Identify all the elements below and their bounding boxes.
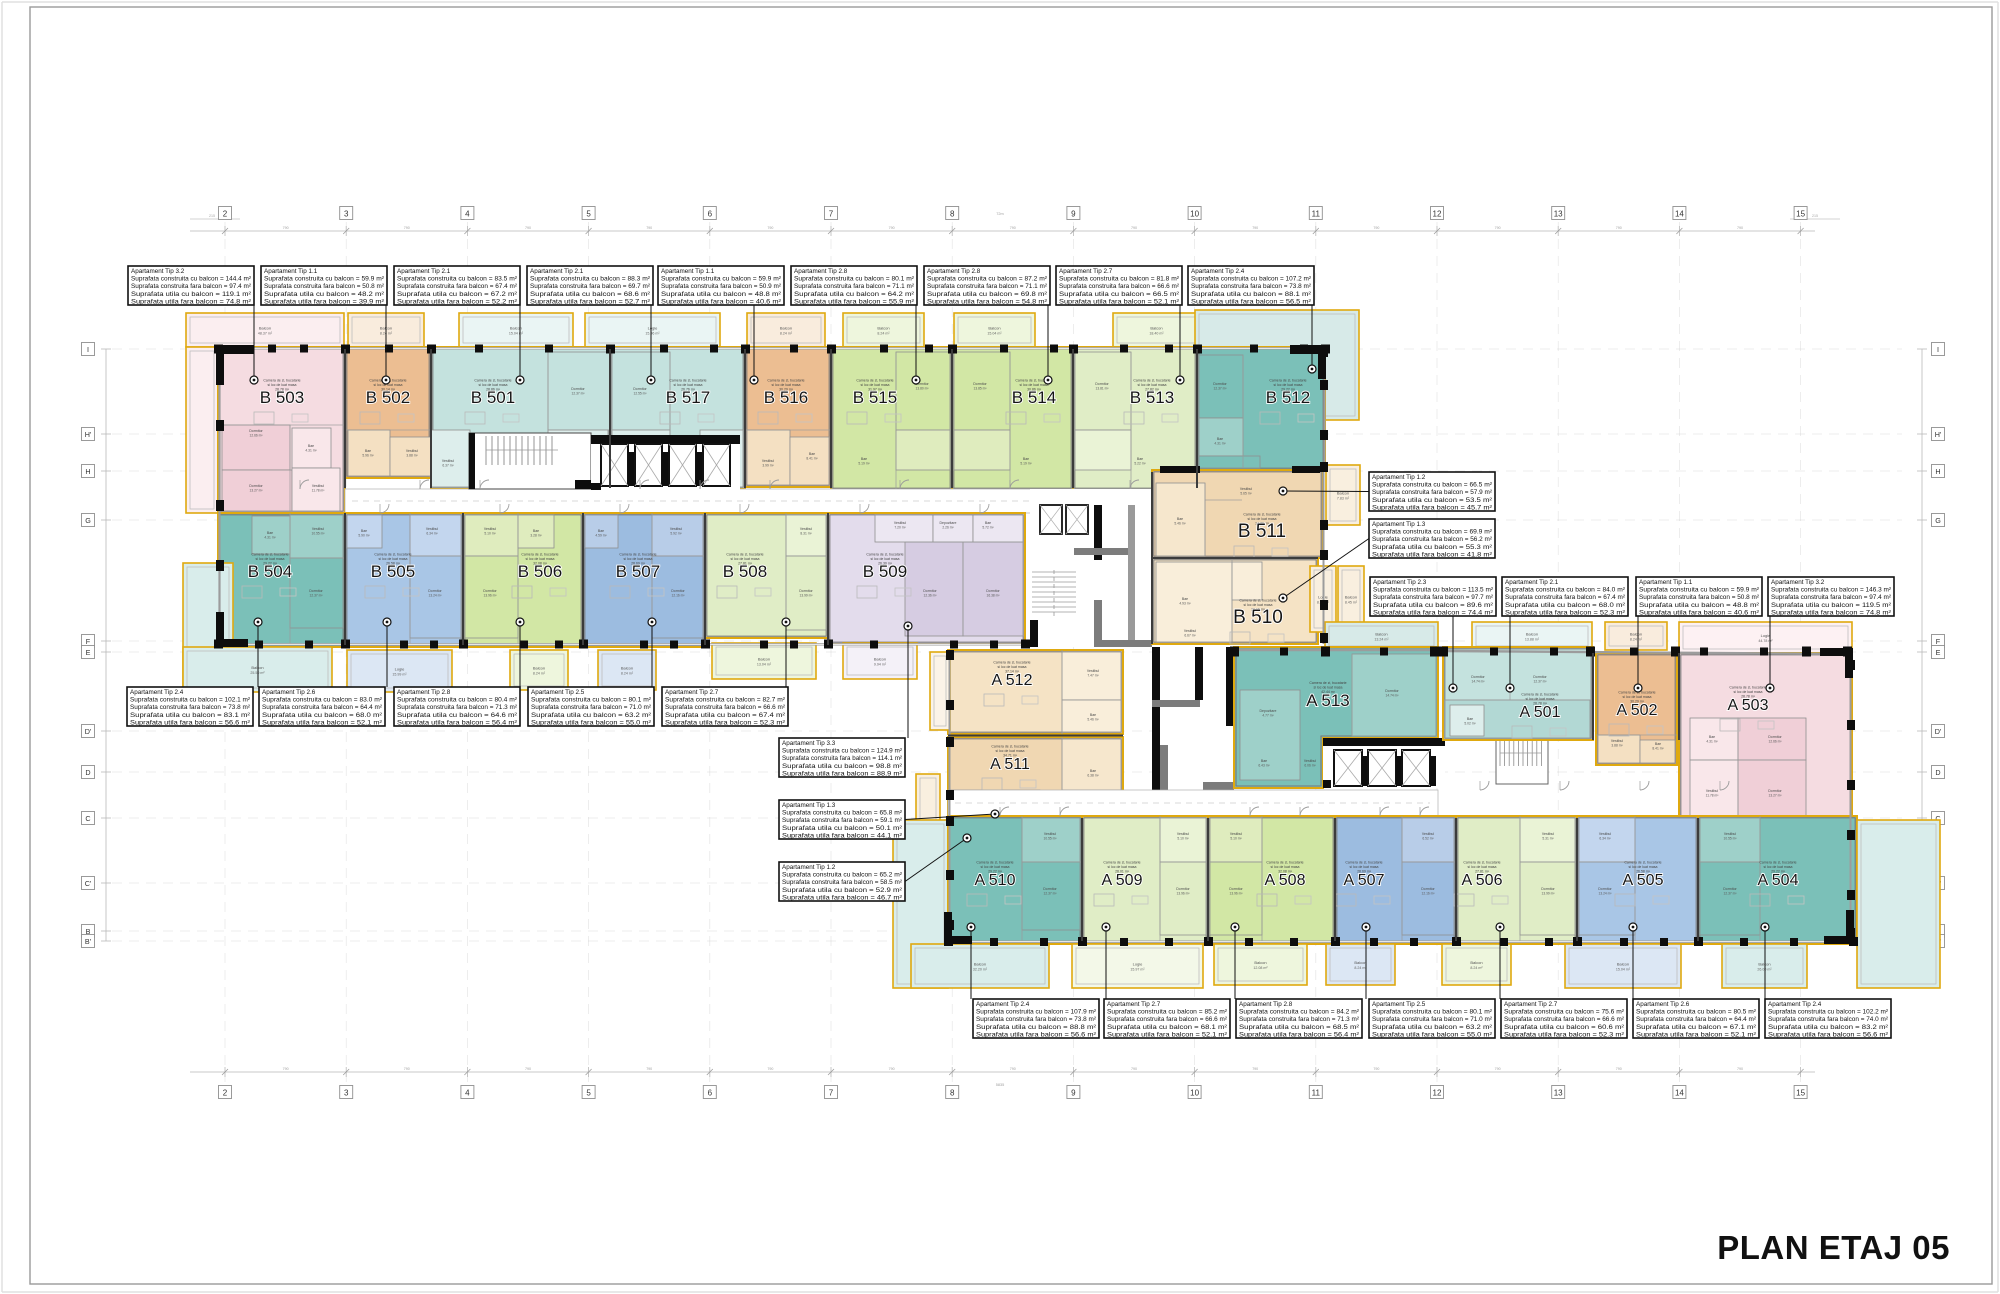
svg-text:13.99 m²: 13.99 m²: [1541, 891, 1555, 895]
svg-text:I: I: [87, 345, 89, 354]
svg-text:Suprafata construita cu balcon: Suprafata construita cu balcon = 80.1 m²: [531, 697, 651, 704]
svg-text:Balcon: Balcon: [1254, 960, 1266, 965]
svg-text:Suprafata construita cu balcon: Suprafata construita cu balcon = 107.2 m…: [1191, 276, 1311, 283]
svg-text:5.31 m²: 5.31 m²: [1542, 836, 1554, 840]
svg-text:Suprafata construita fara balc: Suprafata construita fara balcon = 67.4 …: [1505, 594, 1625, 601]
svg-text:Suprafata utila fara balcon =: Suprafata utila fara balcon = 56.6 m²: [1768, 1031, 1888, 1038]
svg-text:Suprafata construita cu balcon: Suprafata construita cu balcon = 75.6 m²: [1504, 1009, 1624, 1016]
svg-text:Suprafata utila fara balcon =: Suprafata utila fara balcon = 56.6 m²: [130, 719, 250, 726]
svg-text:14: 14: [1675, 1089, 1684, 1098]
svg-text:790: 790: [1131, 1067, 1137, 1071]
svg-text:Balcon: Balcon: [1470, 960, 1482, 965]
svg-text:Suprafata construita fara balc: Suprafata construita fara balcon = 71.1 …: [927, 283, 1047, 290]
svg-text:Dormitor: Dormitor: [428, 589, 442, 593]
svg-text:Balcon: Balcon: [1354, 960, 1366, 965]
svg-text:F: F: [86, 637, 91, 646]
svg-text:Suprafata construita fara balc: Suprafata construita fara balcon = 66.6 …: [1504, 1016, 1624, 1023]
svg-text:12: 12: [1433, 210, 1442, 219]
svg-text:790: 790: [646, 226, 652, 230]
svg-text:Apartament Tip 2.4: Apartament Tip 2.4: [976, 1001, 1030, 1008]
svg-text:Dormitor: Dormitor: [1533, 675, 1547, 679]
svg-text:Apartament Tip 2.4: Apartament Tip 2.4: [1768, 1001, 1822, 1008]
svg-text:48.37 m²: 48.37 m²: [258, 332, 273, 336]
svg-text:si loc de luat masa: si loc de luat masa: [479, 383, 508, 387]
svg-text:si loc de luat masa: si loc de luat masa: [1629, 865, 1658, 869]
svg-text:si loc de luat masa: si loc de luat masa: [871, 557, 900, 561]
svg-text:Suprafata construita cu balcon: Suprafata construita cu balcon = 59.9 m²: [661, 276, 781, 283]
svg-text:Vestibul: Vestibul: [1240, 487, 1252, 491]
svg-text:Apartament Tip 1.2: Apartament Tip 1.2: [1372, 474, 1426, 481]
svg-text:Apartament Tip 2.8: Apartament Tip 2.8: [1239, 1001, 1293, 1008]
svg-text:Suprafata construita fara balc: Suprafata construita fara balcon = 59.1 …: [782, 817, 902, 824]
svg-text:8.31 m²: 8.31 m²: [800, 531, 812, 535]
svg-text:Suprafata construita cu balcon: Suprafata construita cu balcon = 85.2 m²: [1107, 1009, 1227, 1016]
svg-text:Suprafata construita fara balc: Suprafata construita fara balcon = 73.8 …: [130, 704, 250, 711]
svg-text:Suprafata utila fara balcon =: Suprafata utila fara balcon = 56.4 m²: [1239, 1031, 1359, 1038]
svg-text:Suprafata utila cu balcon = 60: Suprafata utila cu balcon = 60.6 m²: [1504, 1024, 1624, 1031]
svg-text:si loc de luat masa: si loc de luat masa: [861, 383, 890, 387]
svg-text:Suprafata utila cu balcon = 64: Suprafata utila cu balcon = 64.6 m²: [397, 712, 517, 719]
svg-text:790: 790: [1495, 226, 1501, 230]
svg-text:si loc de luat masa: si loc de luat masa: [1350, 865, 1379, 869]
svg-text:Suprafata construita cu balcon: Suprafata construita cu balcon = 124.9 m…: [782, 748, 902, 755]
svg-text:72m: 72m: [996, 212, 1003, 216]
svg-text:5835: 5835: [996, 1083, 1004, 1087]
svg-text:790: 790: [404, 226, 410, 230]
svg-text:13.24 m²: 13.24 m²: [1598, 891, 1612, 895]
svg-text:Suprafata construita fara balc: Suprafata construita fara balcon = 66.6 …: [1107, 1016, 1227, 1023]
svg-text:790: 790: [1373, 226, 1379, 230]
svg-text:si loc de luat masa: si loc de luat masa: [1468, 865, 1497, 869]
svg-text:Bae: Bae: [365, 449, 371, 453]
svg-text:Dormitor: Dormitor: [249, 429, 263, 433]
svg-text:790: 790: [1252, 1067, 1258, 1071]
svg-text:Suprafata utila fara balcon =: Suprafata utila fara balcon = 46.7 m²: [782, 894, 902, 901]
svg-text:Dormitor: Dormitor: [1598, 887, 1612, 891]
svg-text:Suprafata utila fara balcon =: Suprafata utila fara balcon = 52.1 m²: [1107, 1031, 1227, 1038]
svg-text:5.22 m²: 5.22 m²: [1134, 461, 1146, 465]
svg-text:Camera de zi, bucatarie: Camera de zi, bucatarie: [669, 379, 706, 383]
svg-text:Camera de zi, bucatarie: Camera de zi, bucatarie: [251, 553, 288, 557]
svg-text:Vestibul: Vestibul: [762, 459, 774, 463]
svg-text:B 512: B 512: [1266, 388, 1310, 407]
svg-text:18.40 m²: 18.40 m²: [1149, 332, 1164, 336]
svg-text:15.97 m²: 15.97 m²: [1130, 968, 1145, 972]
svg-text:Vestibul: Vestibul: [1422, 832, 1434, 836]
svg-text:Apartament Tip 2.5: Apartament Tip 2.5: [1372, 1001, 1426, 1008]
svg-text:Suprafata utila fara balcon =: Suprafata utila fara balcon = 45.7 m²: [1372, 504, 1492, 511]
svg-text:si loc de luat masa: si loc de luat masa: [731, 557, 760, 561]
svg-text:Suprafata construita fara balc: Suprafata construita fara balcon = 97.7 …: [1373, 594, 1493, 601]
svg-text:Suprafata utila fara balcon =: Suprafata utila fara balcon = 55.0 m²: [1372, 1031, 1492, 1038]
svg-text:13.27 m²: 13.27 m²: [249, 488, 263, 492]
svg-text:si loc de luat masa: si loc de luat masa: [268, 383, 297, 387]
svg-text:PLAN ETAJ 05: PLAN ETAJ 05: [1717, 1229, 1950, 1266]
svg-text:Suprafata utila cu balcon = 68: Suprafata utila cu balcon = 68.0 m²: [262, 712, 382, 719]
svg-text:7: 7: [829, 1089, 834, 1098]
svg-text:10: 10: [1190, 1089, 1199, 1098]
svg-text:si loc de luat masa: si loc de luat masa: [624, 557, 653, 561]
svg-text:Camera de zi, bucatarie: Camera de zi, bucatarie: [866, 553, 903, 557]
svg-text:Suprafata utila cu balcon = 11: Suprafata utila cu balcon = 119.1 m²: [131, 291, 251, 298]
svg-text:Suprafata construita fara balc: Suprafata construita fara balcon = 97.4 …: [1771, 594, 1891, 601]
svg-text:Suprafata construita cu balcon: Suprafata construita cu balcon = 80.4 m²: [397, 697, 517, 704]
svg-text:Dormitor: Dormitor: [799, 589, 813, 593]
svg-text:Suprafata construita cu balcon: Suprafata construita cu balcon = 87.2 m²: [927, 276, 1047, 283]
svg-text:5: 5: [586, 210, 591, 219]
svg-text:Vestibul: Vestibul: [1599, 832, 1611, 836]
svg-text:14.74 m²: 14.74 m²: [1385, 693, 1399, 697]
svg-text:790: 790: [1252, 226, 1258, 230]
svg-text:Dormitor: Dormitor: [1229, 887, 1243, 891]
svg-text:Dormitor: Dormitor: [1043, 887, 1057, 891]
svg-text:8.41 m²: 8.41 m²: [1652, 746, 1664, 750]
svg-text:Suprafata utila cu balcon = 83: Suprafata utila cu balcon = 83.2 m²: [1768, 1024, 1888, 1031]
svg-text:Camera de zi, bucatarie: Camera de zi, bucatarie: [1269, 379, 1306, 383]
svg-text:790: 790: [404, 1067, 410, 1071]
svg-text:Suprafata construita cu balcon: Suprafata construita cu balcon = 80.1 m²: [794, 276, 914, 283]
svg-text:Suprafata construita cu balcon: Suprafata construita cu balcon = 146.3 m…: [1771, 587, 1891, 594]
svg-text:Bae: Bae: [308, 444, 314, 448]
svg-text:9: 9: [1071, 210, 1076, 219]
svg-text:12.66 m²: 12.66 m²: [249, 433, 263, 437]
svg-text:Bae: Bae: [861, 457, 867, 461]
svg-text:Suprafata construita fara balc: Suprafata construita fara balcon = 114.1…: [782, 755, 902, 762]
svg-text:4.31 m²: 4.31 m²: [305, 448, 317, 452]
svg-text:A 504: A 504: [1758, 872, 1799, 889]
svg-text:Suprafata utila fara balcon =: Suprafata utila fara balcon = 52.1 m²: [262, 719, 382, 726]
svg-text:Bae: Bae: [533, 529, 539, 533]
svg-text:790: 790: [1616, 226, 1622, 230]
svg-text:si loc de luat masa: si loc de luat masa: [1108, 865, 1137, 869]
svg-text:Suprafata construita fara balc: Suprafata construita fara balcon = 66.6 …: [1059, 283, 1179, 290]
svg-text:Apartament Tip 1.2: Apartament Tip 1.2: [782, 864, 836, 871]
svg-text:Logie: Logie: [648, 326, 659, 331]
svg-text:Suprafata utila cu balcon = 83: Suprafata utila cu balcon = 83.1 m²: [130, 712, 250, 719]
svg-text:A 507: A 507: [1344, 872, 1385, 889]
svg-text:Camera de zi, bucatarie: Camera de zi, bucatarie: [1345, 861, 1382, 865]
svg-text:Apartament Tip 1.1: Apartament Tip 1.1: [264, 268, 318, 275]
svg-text:6.34 m²: 6.34 m²: [1599, 836, 1611, 840]
svg-text:Apartament Tip 1.1: Apartament Tip 1.1: [1639, 579, 1693, 586]
svg-text:Vestibul: Vestibul: [426, 527, 438, 531]
svg-text:Suprafata construita fara balc: Suprafata construita fara balcon = 97.4 …: [131, 283, 251, 290]
svg-text:Suprafata utila fara balcon =: Suprafata utila fara balcon = 74.8 m²: [1771, 609, 1891, 616]
svg-text:Balcon: Balcon: [974, 962, 986, 967]
svg-text:Suprafata utila fara balcon =: Suprafata utila fara balcon = 40.6 m²: [1639, 609, 1759, 616]
svg-text:15.04 m²: 15.04 m²: [509, 332, 524, 336]
svg-text:Apartament Tip 2.4: Apartament Tip 2.4: [130, 689, 184, 696]
svg-text:Suprafata utila cu balcon = 67: Suprafata utila cu balcon = 67.2 m²: [397, 291, 517, 298]
svg-text:Camera de zi, bucatarie: Camera de zi, bucatarie: [1624, 861, 1661, 865]
svg-text:si loc de luat masa: si loc de luat masa: [772, 383, 801, 387]
svg-text:Suprafata utila cu balcon = 68: Suprafata utila cu balcon = 68.5 m²: [1239, 1024, 1359, 1031]
svg-text:Vestibul: Vestibul: [1177, 832, 1189, 836]
svg-text:3: 3: [344, 1089, 349, 1098]
svg-text:Bae: Bae: [267, 531, 273, 535]
svg-text:Balcon: Balcon: [1150, 326, 1162, 331]
svg-text:Suprafata construita fara balc: Suprafata construita fara balcon = 71.1 …: [794, 283, 914, 290]
svg-text:Balcon: Balcon: [988, 326, 1000, 331]
svg-text:Camera de zi, bucatarie: Camera de zi, bucatarie: [1239, 599, 1276, 603]
svg-text:Bae: Bae: [1023, 457, 1029, 461]
svg-text:Suprafata construita fara balc: Suprafata construita fara balcon = 67.4 …: [397, 283, 517, 290]
svg-text:13.27 m²: 13.27 m²: [1768, 793, 1782, 797]
svg-text:Suprafata construita fara balc: Suprafata construita fara balcon = 69.7 …: [530, 283, 650, 290]
svg-text:Apartament Tip 2.7: Apartament Tip 2.7: [665, 689, 719, 696]
svg-text:9.94 m²: 9.94 m²: [874, 663, 887, 667]
svg-text:12.16 m²: 12.16 m²: [1421, 891, 1435, 895]
svg-text:5.10 m²: 5.10 m²: [1230, 836, 1242, 840]
svg-text:A 503: A 503: [1728, 697, 1769, 714]
svg-text:Suprafata utila cu balcon = 67: Suprafata utila cu balcon = 67.1 m²: [1636, 1024, 1756, 1031]
svg-text:215: 215: [1812, 214, 1818, 218]
svg-text:4: 4: [465, 1089, 470, 1098]
svg-text:8.24 m²: 8.24 m²: [1470, 966, 1483, 970]
svg-text:Suprafata utila cu balcon = 11: Suprafata utila cu balcon = 119.5 m²: [1771, 602, 1891, 609]
svg-text:B': B': [85, 937, 92, 946]
svg-text:Suprafata construita fara balc: Suprafata construita fara balcon = 64.4 …: [262, 704, 382, 711]
svg-text:Suprafata construita cu balcon: Suprafata construita cu balcon = 59.9 m²: [1639, 587, 1759, 594]
svg-text:Bae: Bae: [1090, 713, 1096, 717]
svg-text:Suprafata construita cu balcon: Suprafata construita cu balcon = 59.9 m²: [264, 276, 384, 283]
svg-text:6.37 m²: 6.37 m²: [442, 463, 454, 467]
svg-text:si loc de luat masa: si loc de luat masa: [379, 557, 408, 561]
svg-text:Balcon: Balcon: [780, 326, 792, 331]
svg-text:Vestibul: Vestibul: [484, 527, 496, 531]
svg-text:Vestibul: Vestibul: [1706, 789, 1718, 793]
svg-text:44.78 m²: 44.78 m²: [1758, 639, 1773, 643]
svg-text:8.24 m²: 8.24 m²: [1630, 638, 1643, 642]
svg-text:Dormitor: Dormitor: [1768, 735, 1782, 739]
svg-text:Balcon: Balcon: [621, 666, 633, 671]
svg-text:Camera de zi, bucatarie: Camera de zi, bucatarie: [474, 379, 511, 383]
svg-text:Vestibul: Vestibul: [1230, 832, 1242, 836]
svg-text:Vestibul: Vestibul: [670, 527, 682, 531]
svg-text:5.90 m²: 5.90 m²: [358, 533, 370, 537]
svg-text:3.99 m²: 3.99 m²: [762, 463, 774, 467]
svg-text:Suprafata utila fara balcon =: Suprafata utila fara balcon = 44.1 m²: [782, 832, 902, 839]
svg-text:16.38 m²: 16.38 m²: [986, 593, 1000, 597]
svg-text:10.55 m²: 10.55 m²: [1723, 836, 1737, 840]
svg-text:A 501: A 501: [1520, 704, 1561, 721]
svg-text:790: 790: [1616, 1067, 1622, 1071]
svg-text:Suprafata construita cu balcon: Suprafata construita cu balcon = 65.2 m²: [782, 872, 902, 879]
svg-text:32.20 m²: 32.20 m²: [973, 968, 988, 972]
svg-text:Suprafata construita cu balcon: Suprafata construita cu balcon = 107.9 m…: [976, 1009, 1096, 1016]
svg-text:4.31 m²: 4.31 m²: [1214, 441, 1226, 445]
svg-text:9: 9: [1071, 1089, 1076, 1098]
svg-text:Apartament Tip 2.5: Apartament Tip 2.5: [531, 689, 585, 696]
svg-text:si loc de luat masa: si loc de luat masa: [526, 557, 555, 561]
svg-text:4.59 m²: 4.59 m²: [595, 533, 607, 537]
svg-text:Camera de zi, bucatarie: Camera de zi, bucatarie: [1133, 379, 1170, 383]
svg-text:si loc de luat masa: si loc de luat masa: [1623, 695, 1652, 699]
svg-text:Suprafata utila cu balcon = 48: Suprafata utila cu balcon = 48.2 m²: [264, 291, 384, 298]
svg-text:A 506: A 506: [1462, 872, 1503, 889]
svg-text:Vestibul: Vestibul: [1304, 759, 1316, 763]
svg-text:790: 790: [1010, 226, 1016, 230]
svg-text:G: G: [85, 516, 91, 525]
svg-text:H: H: [1935, 467, 1940, 476]
svg-text:B 503: B 503: [260, 388, 304, 407]
svg-text:Camera de zi, bucatarie: Camera de zi, bucatarie: [1266, 861, 1303, 865]
svg-text:2: 2: [223, 210, 228, 219]
svg-text:8.24 m²: 8.24 m²: [877, 332, 890, 336]
svg-text:5: 5: [586, 1089, 591, 1098]
svg-text:Suprafata utila fara balcon =: Suprafata utila fara balcon = 88.9 m²: [782, 770, 902, 777]
svg-text:Camera de zi, bucatarie: Camera de zi, bucatarie: [374, 553, 411, 557]
svg-text:3.88 m²: 3.88 m²: [1611, 743, 1623, 747]
svg-text:I: I: [1937, 345, 1939, 354]
svg-text:8.24 m²: 8.24 m²: [780, 332, 793, 336]
svg-text:Apartament Tip 1.3: Apartament Tip 1.3: [782, 802, 836, 809]
svg-text:Suprafata construita fara balc: Suprafata construita fara balcon = 71.0 …: [531, 704, 651, 711]
svg-text:Suprafata construita fara balc: Suprafata construita fara balcon = 73.8 …: [976, 1016, 1096, 1023]
svg-text:790: 790: [1737, 1067, 1743, 1071]
svg-text:A 505: A 505: [1623, 872, 1664, 889]
svg-text:Suprafata construita fara balc: Suprafata construita fara balcon = 73.8 …: [1191, 283, 1311, 290]
svg-text:Suprafata utila fara balcon =: Suprafata utila fara balcon = 39.9 m²: [264, 298, 384, 305]
svg-text:11.78 m²: 11.78 m²: [1706, 793, 1720, 797]
svg-text:12.37 m²: 12.37 m²: [1533, 679, 1547, 683]
svg-text:Suprafata utila cu balcon = 68: Suprafata utila cu balcon = 68.0 m²: [1505, 602, 1625, 609]
svg-text:Suprafata utila fara balcon =: Suprafata utila fara balcon = 55.0 m²: [531, 719, 651, 726]
svg-text:Suprafata utila fara balcon =: Suprafata utila fara balcon = 52.3 m²: [1504, 1031, 1624, 1038]
svg-text:Suprafata utila cu balcon = 67: Suprafata utila cu balcon = 67.4 m²: [665, 712, 785, 719]
svg-text:13.99 m²: 13.99 m²: [799, 593, 813, 597]
svg-text:Balcon: Balcon: [1630, 632, 1642, 637]
svg-text:15.99 m²: 15.99 m²: [392, 673, 407, 677]
svg-text:Balcon: Balcon: [874, 657, 886, 662]
svg-text:Dormitor: Dormitor: [1541, 887, 1555, 891]
svg-text:Balcon: Balcon: [259, 326, 271, 331]
svg-text:4: 4: [465, 210, 470, 219]
svg-text:5.72 m²: 5.72 m²: [982, 525, 994, 529]
svg-text:3.88 m²: 3.88 m²: [406, 453, 418, 457]
svg-text:Suprafata construita cu balcon: Suprafata construita cu balcon = 144.4 m…: [131, 276, 251, 283]
svg-text:3.28 m²: 3.28 m²: [530, 533, 542, 537]
svg-text:5.65 m²: 5.65 m²: [1240, 491, 1252, 495]
svg-text:Vestibul: Vestibul: [312, 484, 324, 488]
svg-text:Suprafata construita fara balc: Suprafata construita fara balcon = 50.8 …: [1639, 594, 1759, 601]
svg-text:Suprafata utila fara balcon =: Suprafata utila fara balcon = 56.4 m²: [397, 719, 517, 726]
svg-text:A 508: A 508: [1265, 872, 1306, 889]
svg-text:Camera de zi, bucatarie: Camera de zi, bucatarie: [1759, 861, 1796, 865]
svg-text:790: 790: [1495, 1067, 1501, 1071]
svg-text:si loc de luat masa: si loc de luat masa: [1314, 686, 1343, 690]
svg-text:B 506: B 506: [518, 562, 562, 581]
svg-text:Camera de zi, bucatarie: Camera de zi, bucatarie: [1103, 861, 1140, 865]
svg-text:A 512: A 512: [992, 672, 1033, 689]
svg-text:5.10 m²: 5.10 m²: [1177, 836, 1189, 840]
svg-text:13.88 m²: 13.88 m²: [1525, 638, 1540, 642]
svg-text:D': D': [85, 727, 92, 736]
svg-text:Camera de zi, bucatarie: Camera de zi, bucatarie: [1729, 686, 1766, 690]
svg-text:Suprafata utila cu balcon = 52: Suprafata utila cu balcon = 52.9 m²: [782, 887, 902, 894]
svg-text:Balcon: Balcon: [533, 666, 545, 671]
svg-text:A 513: A 513: [1306, 691, 1350, 710]
svg-text:C: C: [85, 814, 90, 823]
svg-text:Balcon: Balcon: [1617, 962, 1629, 967]
svg-text:2.26 m²: 2.26 m²: [942, 525, 954, 529]
svg-text:790: 790: [767, 1067, 773, 1071]
svg-text:Bae: Bae: [1137, 457, 1143, 461]
svg-text:Apartament Tip 2.7: Apartament Tip 2.7: [1107, 1001, 1161, 1008]
svg-text:12.37 m²: 12.37 m²: [1043, 891, 1057, 895]
svg-text:13.24 m²: 13.24 m²: [1374, 638, 1389, 642]
svg-text:10.55 m²: 10.55 m²: [1043, 836, 1057, 840]
svg-text:Suprafata utila fara balcon =: Suprafata utila fara balcon = 52.3 m²: [1505, 609, 1625, 616]
svg-text:6.34 m²: 6.34 m²: [426, 531, 438, 535]
svg-text:D: D: [85, 768, 90, 777]
svg-text:12.66 m²: 12.66 m²: [1768, 739, 1782, 743]
svg-text:4.31 m²: 4.31 m²: [1706, 739, 1718, 743]
svg-text:Apartament Tip 3.2: Apartament Tip 3.2: [131, 268, 185, 275]
svg-text:Apartament Tip 2.8: Apartament Tip 2.8: [397, 689, 451, 696]
svg-text:8.24 m²: 8.24 m²: [1354, 966, 1367, 970]
svg-text:Suprafata utila cu balcon = 50: Suprafata utila cu balcon = 50.1 m²: [782, 825, 902, 832]
svg-text:Suprafata utila fara balcon =: Suprafata utila fara balcon = 52.7 m²: [530, 298, 650, 305]
svg-text:Bae: Bae: [598, 529, 604, 533]
svg-text:Logie: Logie: [395, 667, 406, 672]
svg-text:Dormitor: Dormitor: [633, 387, 647, 391]
svg-text:B 514: B 514: [1012, 388, 1056, 407]
svg-text:si loc de luat masa: si loc de luat masa: [256, 557, 285, 561]
svg-text:B 502: B 502: [366, 388, 410, 407]
svg-text:12.37 m²: 12.37 m²: [309, 593, 323, 597]
svg-text:Vestibul: Vestibul: [1044, 832, 1056, 836]
svg-text:Bae: Bae: [1090, 769, 1096, 773]
svg-text:C': C': [85, 879, 92, 888]
svg-text:8.24 m²: 8.24 m²: [621, 672, 634, 676]
svg-text:Suprafata utila cu balcon = 53: Suprafata utila cu balcon = 53.5 m²: [1372, 497, 1492, 504]
svg-text:Camera de zi, bucatarie: Camera de zi, bucatarie: [1243, 513, 1280, 517]
svg-text:5.02 m²: 5.02 m²: [1464, 721, 1476, 725]
svg-text:8: 8: [950, 210, 955, 219]
svg-text:Dormitor: Dormitor: [923, 589, 937, 593]
svg-text:H': H': [1935, 430, 1942, 439]
svg-text:Suprafata utila fara balcon =: Suprafata utila fara balcon = 52.1 m²: [1059, 298, 1179, 305]
svg-text:8.41 m²: 8.41 m²: [806, 456, 818, 460]
svg-text:Apartament Tip 1.3: Apartament Tip 1.3: [1372, 521, 1426, 528]
svg-text:si loc de luat masa: si loc de luat masa: [1526, 697, 1555, 701]
svg-text:Dormitor: Dormitor: [1421, 887, 1435, 891]
svg-text:Apartament Tip 1.1: Apartament Tip 1.1: [661, 268, 715, 275]
svg-text:15: 15: [1796, 1089, 1805, 1098]
svg-text:790: 790: [646, 1067, 652, 1071]
svg-text:Apartament Tip 2.6: Apartament Tip 2.6: [1636, 1001, 1690, 1008]
svg-text:Camera de zi, bucatarie: Camera de zi, bucatarie: [976, 861, 1013, 865]
svg-text:12.55 m²: 12.55 m²: [633, 391, 647, 395]
svg-text:Dormitor: Dormitor: [1176, 887, 1190, 891]
svg-text:Logie: Logie: [1133, 962, 1144, 967]
svg-text:5.19 m²: 5.19 m²: [1020, 461, 1032, 465]
svg-text:Apartament Tip 2.3: Apartament Tip 2.3: [1373, 579, 1427, 586]
svg-text:15: 15: [1796, 210, 1805, 219]
svg-text:Suprafata construita fara balc: Suprafata construita fara balcon = 66.6 …: [665, 704, 785, 711]
svg-text:6.43 m²: 6.43 m²: [1258, 763, 1270, 767]
svg-text:Dormitor: Dormitor: [309, 589, 323, 593]
svg-text:Camera de zi, bucatarie: Camera de zi, bucatarie: [726, 553, 763, 557]
svg-text:790: 790: [1373, 1067, 1379, 1071]
svg-text:7: 7: [829, 210, 834, 219]
svg-text:12: 12: [1433, 1089, 1442, 1098]
svg-text:Vestibul: Vestibul: [1542, 832, 1554, 836]
svg-text:Apartament Tip 2.4: Apartament Tip 2.4: [1191, 268, 1245, 275]
svg-text:Apartament Tip 2.1: Apartament Tip 2.1: [1505, 579, 1559, 586]
svg-text:Vestibul: Vestibul: [894, 521, 906, 525]
